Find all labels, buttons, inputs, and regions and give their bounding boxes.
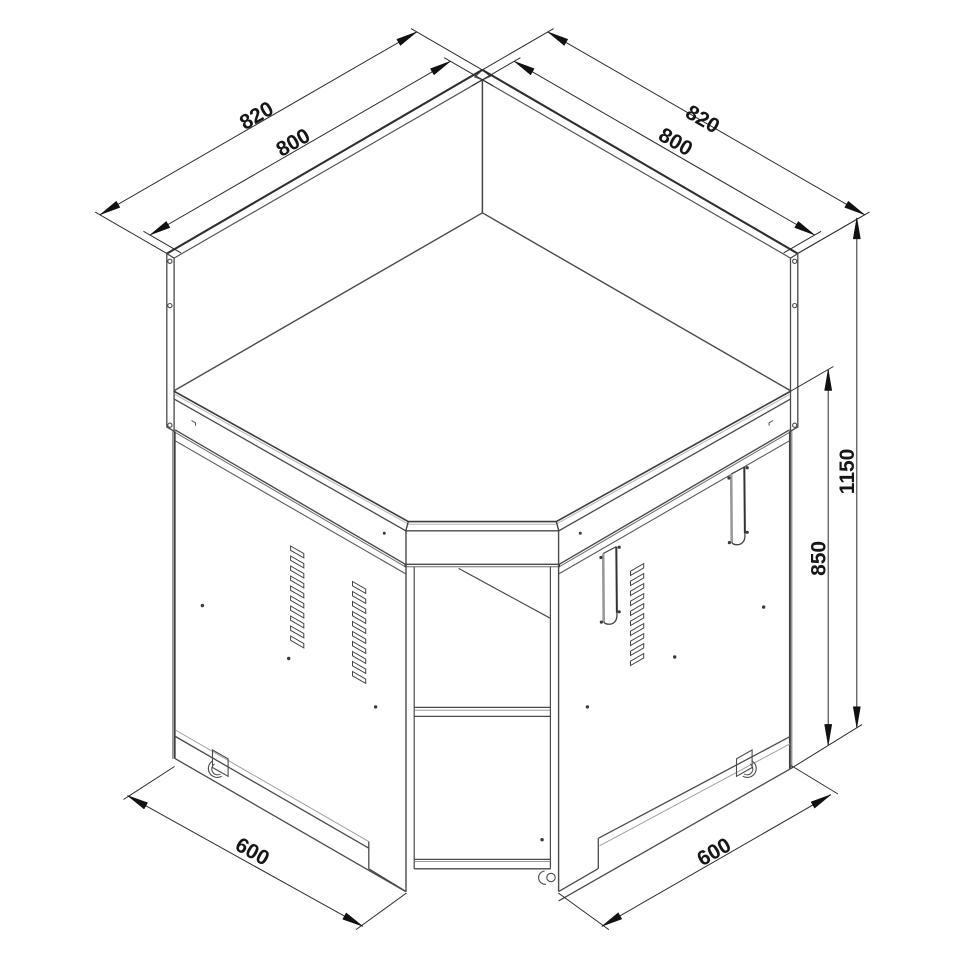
svg-text:1150: 1150 [836,449,859,495]
svg-text:850: 850 [808,541,831,576]
